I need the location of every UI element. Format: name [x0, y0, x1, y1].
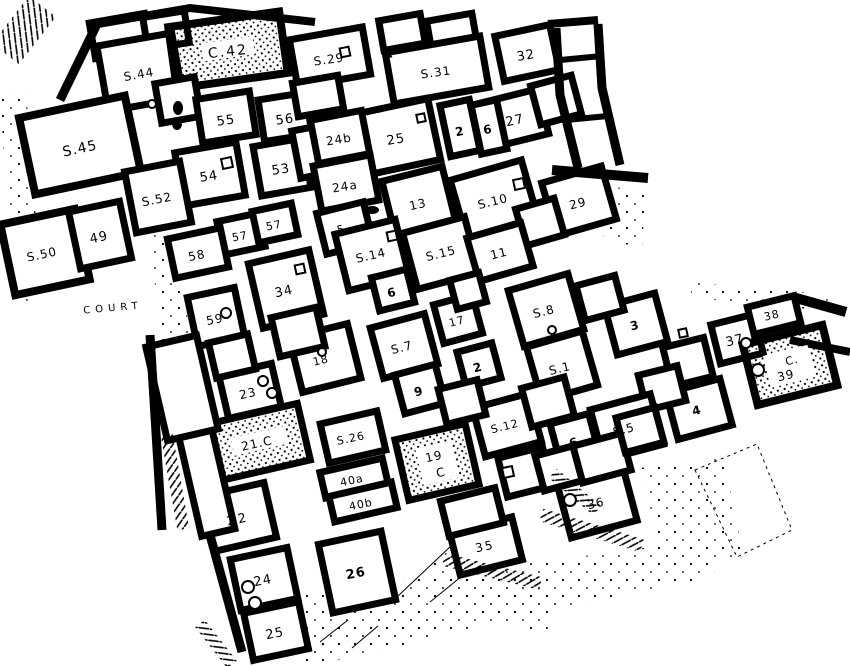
bin-icon — [564, 494, 576, 506]
oven-icon — [416, 113, 425, 122]
oven-icon — [502, 466, 514, 478]
site-plan-canvas: C.42S.44S.29S.3132555627262524bS.4554532… — [0, 0, 850, 666]
room-label: 54 — [199, 168, 220, 186]
wall-segment — [566, 116, 608, 120]
room-outline — [450, 273, 487, 310]
room-outline — [292, 75, 343, 116]
bin-icon — [148, 100, 156, 108]
wall-segment — [560, 56, 602, 60]
platform-icon — [365, 206, 379, 214]
room-label: 25 — [386, 131, 407, 149]
oven-icon — [678, 328, 687, 337]
room-outline — [438, 380, 486, 425]
bin-icon — [548, 326, 556, 334]
oven-icon — [295, 264, 306, 275]
room-label: 53 — [271, 161, 292, 179]
oven-icon — [513, 178, 525, 190]
wall-segment — [548, 20, 598, 24]
room-label: 32 — [516, 47, 537, 65]
platform-icon — [172, 118, 182, 130]
hatch-band — [0, 0, 56, 64]
wall-segment — [598, 24, 620, 165]
bin-icon — [752, 364, 764, 376]
room-outline — [271, 307, 325, 356]
room-outline — [208, 334, 255, 378]
wall-segment — [60, 22, 98, 100]
bin-icon — [242, 581, 254, 593]
room-label: 56 — [275, 111, 295, 128]
room-label: 55 — [216, 112, 236, 129]
site-plan-drawing: C.42S.44S.29S.3132555627262524bS.4554532… — [0, 0, 850, 666]
room-outline — [576, 275, 624, 320]
bin-icon — [249, 597, 261, 609]
oven-icon — [387, 231, 398, 242]
platform-icon — [173, 101, 183, 115]
room-outline — [522, 377, 575, 427]
bin-icon — [267, 388, 277, 398]
oven-icon — [221, 157, 233, 169]
bin-icon — [258, 376, 268, 386]
rooms-layer — [0, 11, 837, 660]
room-label: COURT — [83, 300, 143, 316]
